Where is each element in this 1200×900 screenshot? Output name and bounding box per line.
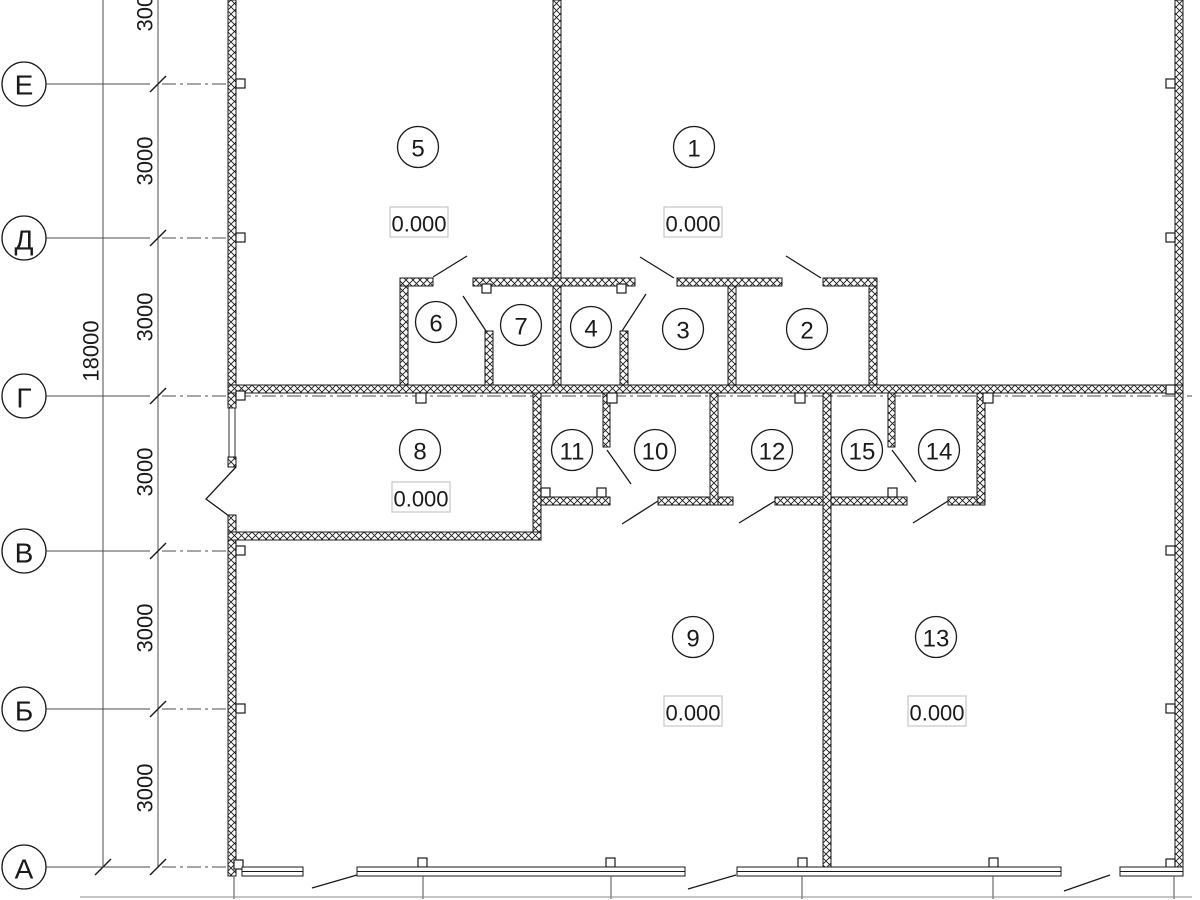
- door-leaf-room10-bottom: [622, 501, 658, 524]
- axis-bubbles: Е Д Г В Б А: [2, 62, 46, 889]
- room-number-6: 6: [429, 311, 442, 338]
- door-leaf-entrance-2: [688, 875, 736, 889]
- elevation-value-room9: 0.000: [665, 701, 720, 726]
- wall-center-vertical: [553, 0, 561, 393]
- axis-lines: [46, 84, 1192, 867]
- column-right-e: [1166, 79, 1175, 88]
- dim-segment-1: 3000: [133, 137, 158, 186]
- column-left-v: [236, 546, 245, 555]
- door-leaf-11-10: [607, 450, 631, 484]
- wall-stub-15-14: [888, 393, 895, 447]
- room-number-1: 1: [687, 136, 700, 163]
- wall-stub-4-3: [620, 331, 628, 385]
- door-leaf-entrance-1: [312, 875, 357, 888]
- column-markers: [234, 79, 1175, 869]
- storefront-band: [242, 867, 1183, 876]
- room-number-11: 11: [560, 439, 585, 466]
- column-right-g: [1166, 385, 1175, 394]
- bottom-extension-lines: [80, 876, 1192, 899]
- room-number-13: 13: [923, 626, 950, 653]
- column-g-4: [983, 393, 993, 403]
- column-a-1: [418, 858, 427, 867]
- elevation-value-room1: 0.000: [665, 212, 720, 237]
- column-a-4: [989, 858, 998, 867]
- dim-segment-0: 3000: [133, 0, 158, 31]
- elevation-value-room8: 0.000: [393, 487, 448, 512]
- axis-label-d: Д: [15, 225, 34, 256]
- column-g-2: [607, 393, 617, 403]
- room-number-2: 2: [800, 318, 813, 345]
- wall-stub-6-7: [485, 331, 493, 385]
- dimension-column: [95, 0, 166, 875]
- door-leaf-15-14: [892, 450, 916, 482]
- jamb-15-14: [888, 488, 897, 497]
- elevation-value-room5: 0.000: [391, 212, 446, 237]
- column-a-2: [606, 858, 615, 867]
- wall-room8-bottom: [228, 532, 541, 540]
- wall-10-12: [710, 393, 718, 505]
- room-number-12: 12: [759, 439, 786, 466]
- column-right-v: [1166, 546, 1175, 555]
- floor-plan-canvas: 3000 3000 3000 3000 3000 3000 18000 Е Д …: [0, 0, 1200, 900]
- jamb-6-7: [482, 284, 491, 293]
- window-left-wall: [229, 408, 235, 457]
- wall-axis-g: [228, 385, 1183, 393]
- column-g-3: [795, 393, 805, 403]
- wall-right: [1175, 0, 1183, 876]
- door-leaf-room12-bottom: [739, 501, 775, 523]
- wall-row-top-seg4: [823, 278, 877, 286]
- wall-row2-bottom-seg1: [541, 497, 610, 505]
- column-left-g: [236, 391, 245, 400]
- wall-room8-right: [533, 393, 541, 540]
- elevation-value-room13: 0.000: [909, 701, 964, 726]
- jamb-11-10: [597, 488, 606, 497]
- wall-row-top-seg1: [400, 278, 433, 286]
- axis-label-e: Е: [15, 70, 34, 101]
- room-number-14: 14: [926, 439, 953, 466]
- axis-label-g: Г: [16, 383, 31, 414]
- jamb-11-left: [541, 488, 550, 497]
- door-leaves: [206, 256, 1110, 891]
- room-number-3: 3: [676, 318, 689, 345]
- door-leaf-6-7: [463, 296, 486, 331]
- floor-plan-svg: 3000 3000 3000 3000 3000 3000 18000 Е Д …: [0, 0, 1200, 900]
- room-number-10: 10: [642, 439, 669, 466]
- door-leaf-room14-bottom: [913, 501, 948, 523]
- wall-room2-right: [869, 286, 877, 385]
- axis-label-a: А: [15, 854, 34, 885]
- column-left-e: [236, 79, 245, 88]
- column-right-b: [1166, 704, 1175, 713]
- room-number-9: 9: [686, 626, 699, 653]
- room-number-7: 7: [514, 314, 527, 341]
- wall-left-upper: [228, 0, 236, 408]
- wall-9-13: [823, 393, 831, 867]
- wall-left-pier: [228, 457, 236, 467]
- room-number-15: 15: [849, 439, 876, 466]
- wall-row-top-seg2: [473, 278, 635, 286]
- jamb-4-3: [617, 284, 626, 293]
- dim-segment-2: 3000: [133, 293, 158, 342]
- wall-room6-left: [400, 286, 408, 385]
- dim-segment-3: 3000: [133, 448, 158, 497]
- column-right-d: [1166, 233, 1175, 242]
- column-g-1: [416, 393, 426, 403]
- axis-label-b: Б: [15, 696, 33, 727]
- room-number-8: 8: [413, 439, 426, 466]
- wall-left-lower: [228, 515, 236, 876]
- wall-3-2: [728, 286, 736, 385]
- door-leaf-left-wall: [206, 467, 236, 516]
- wall-row-top-seg3: [677, 278, 782, 286]
- door-leaf-room2-top: [786, 256, 821, 278]
- door-leaf-room6-top: [433, 256, 467, 277]
- wall-row2-bottom-seg3: [775, 497, 907, 505]
- wall-row2-bottom-seg2: [658, 497, 733, 505]
- dim-segment-4: 3000: [133, 604, 158, 653]
- column-a-3: [798, 858, 807, 867]
- column-left-d: [236, 233, 245, 242]
- axis-label-v: В: [15, 538, 34, 569]
- room-number-5: 5: [411, 136, 424, 163]
- door-leaf-entrance-3: [1064, 875, 1110, 891]
- room-number-4: 4: [584, 316, 597, 343]
- door-leaf-room3-top: [640, 257, 674, 278]
- dim-total: 18000: [79, 320, 104, 381]
- door-leaf-4-3: [622, 294, 646, 331]
- column-left-b: [236, 704, 245, 713]
- wall-room14-right: [977, 393, 985, 503]
- dim-segment-5: 3000: [133, 764, 158, 813]
- dimension-labels: 3000 3000 3000 3000 3000 3000 18000: [79, 0, 158, 812]
